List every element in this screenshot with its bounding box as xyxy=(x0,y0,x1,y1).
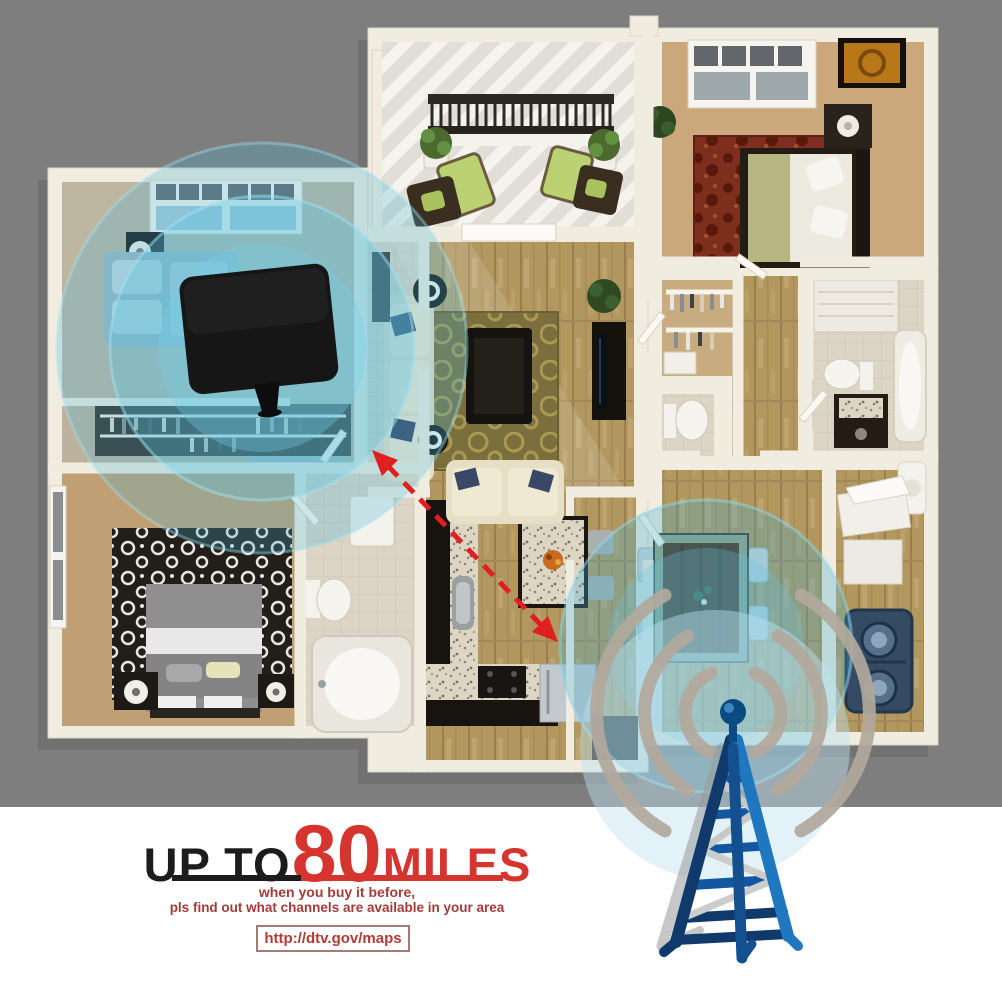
dtv-maps-url: http://dtv.gov/maps xyxy=(256,925,410,952)
advertisement-image: UP TO80MILES when you buy it before, pls… xyxy=(0,0,1002,1002)
note-line-1: when you buy it before, xyxy=(97,884,577,900)
balcony-door xyxy=(462,224,556,241)
furniture-toilet-room xyxy=(664,400,708,440)
note-line-2: pls find out what channels are available… xyxy=(97,900,577,915)
headline-underline xyxy=(172,875,503,881)
